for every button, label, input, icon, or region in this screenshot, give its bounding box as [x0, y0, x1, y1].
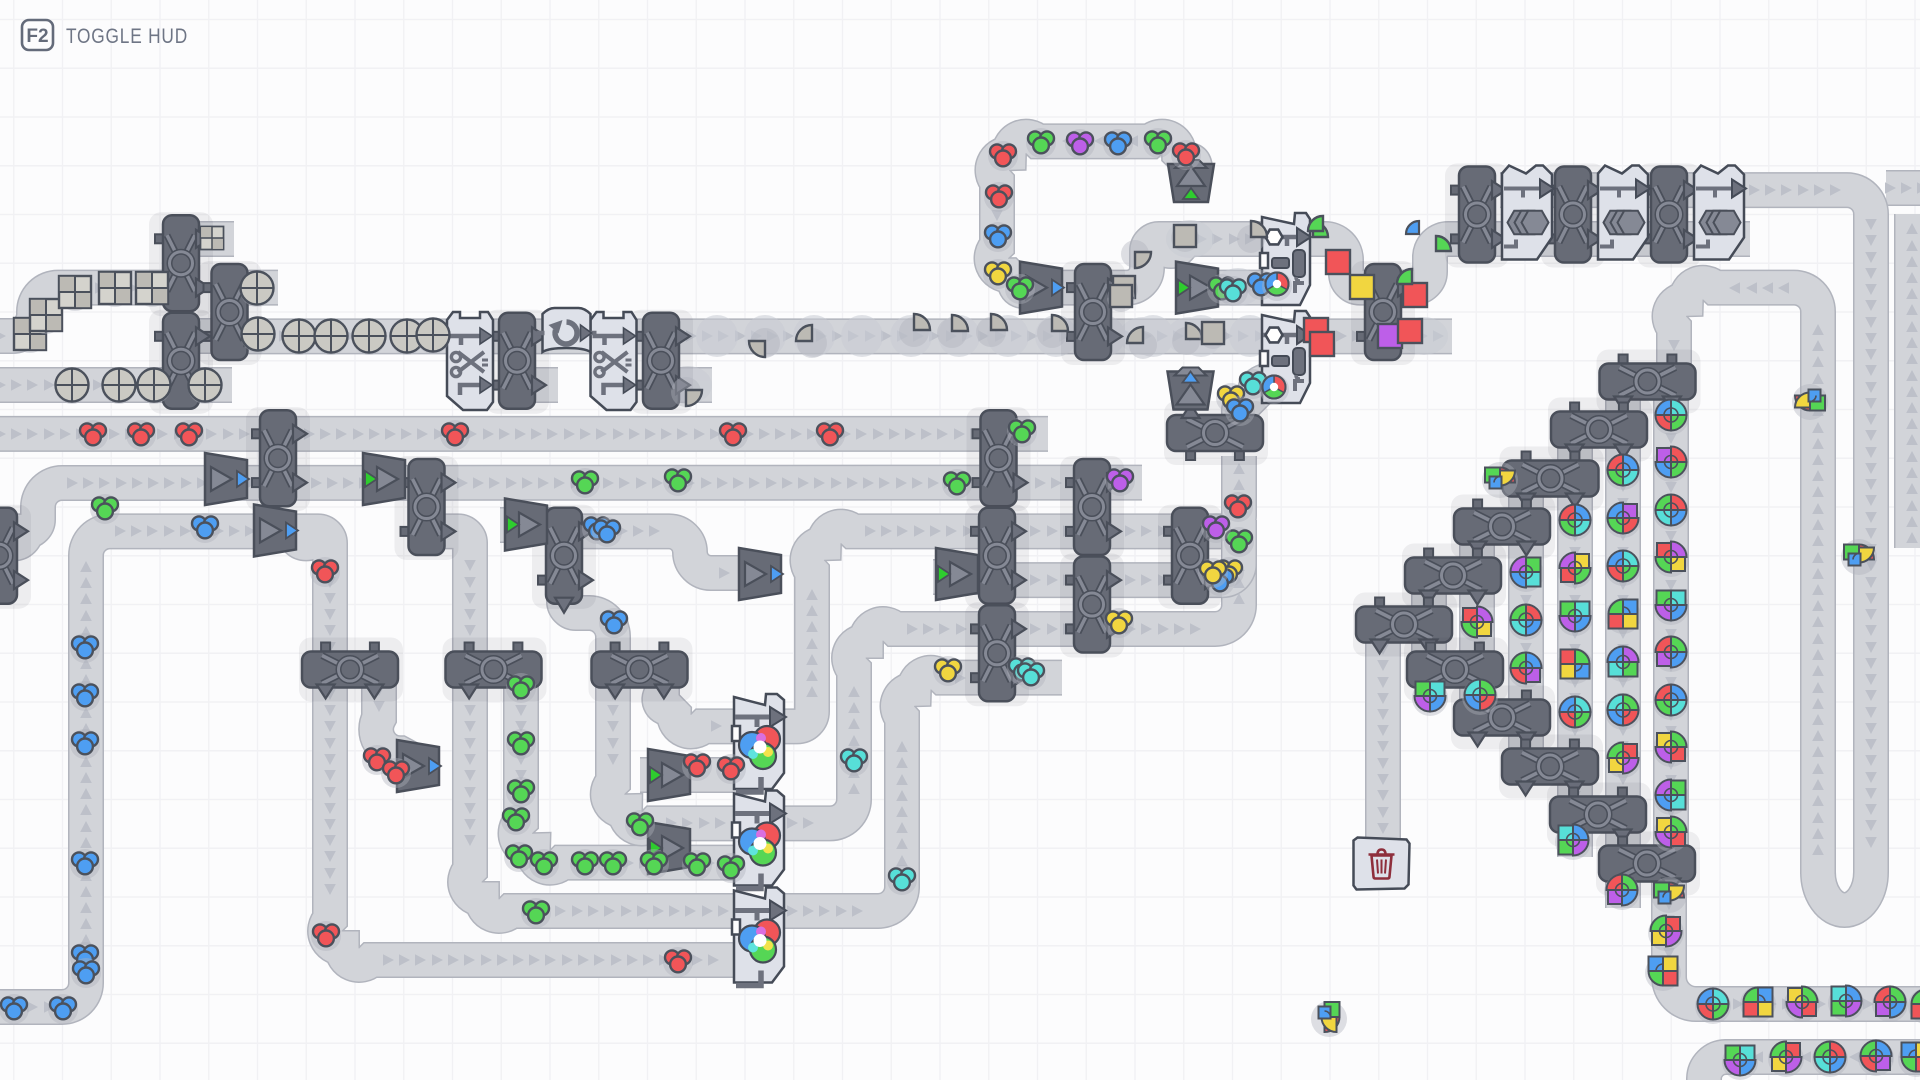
svg-text:F2: F2: [26, 26, 48, 47]
svg-text:TOGGLE HUD: TOGGLE HUD: [66, 24, 188, 48]
